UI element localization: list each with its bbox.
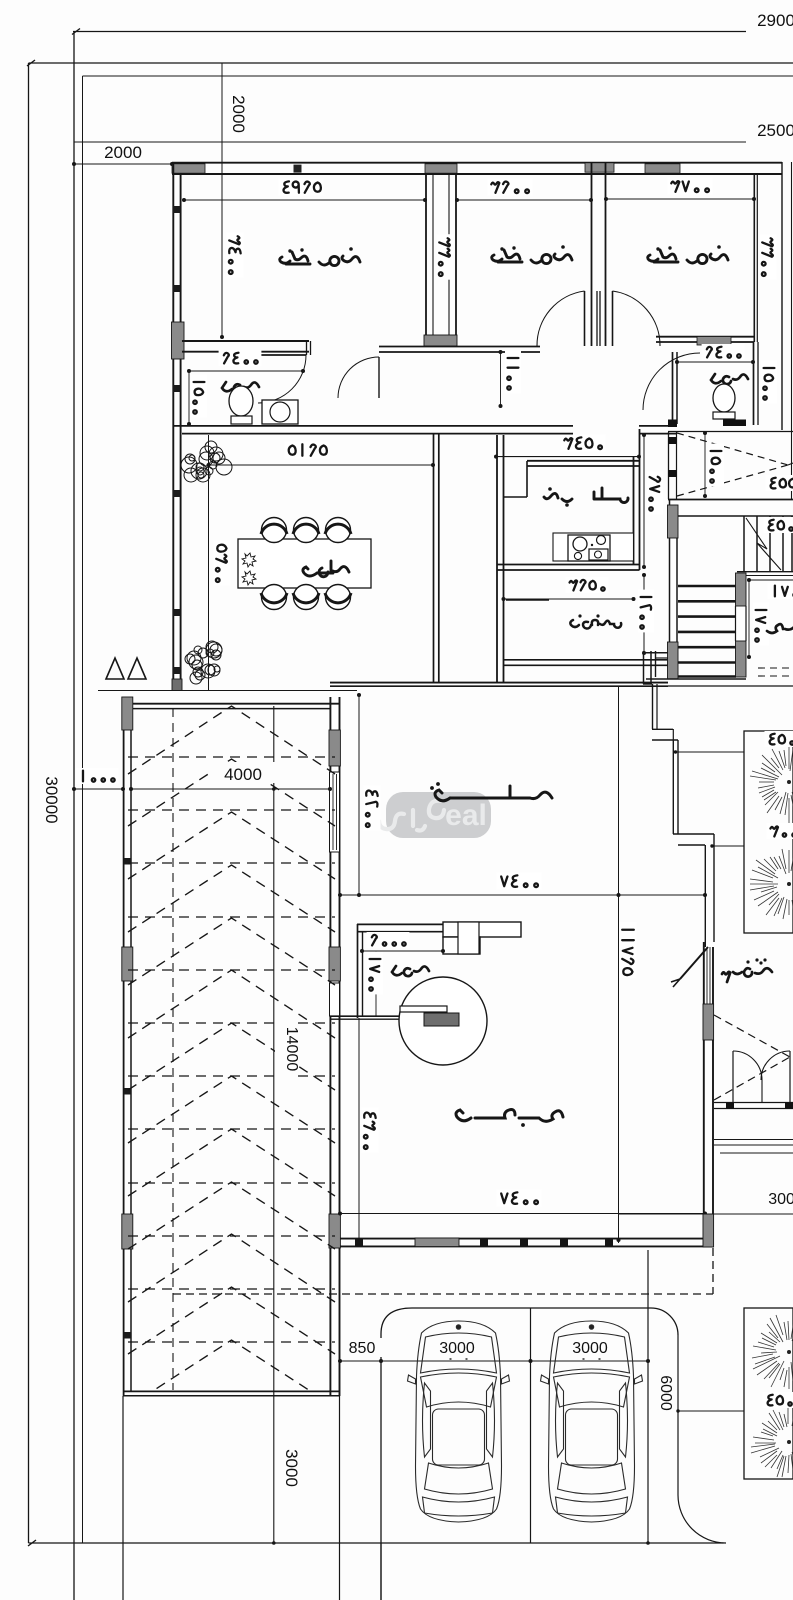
svg-text:eal: eal xyxy=(445,799,487,832)
svg-text:14000: 14000 xyxy=(283,1027,300,1072)
svg-text:2000: 2000 xyxy=(104,143,142,162)
svg-text:6000: 6000 xyxy=(657,1375,674,1411)
svg-text:2500: 2500 xyxy=(757,121,793,140)
svg-text:3000: 3000 xyxy=(572,1340,608,1357)
svg-text:30000: 30000 xyxy=(42,776,61,823)
svg-text:2000: 2000 xyxy=(229,95,248,133)
svg-text:4000: 4000 xyxy=(224,765,262,784)
svg-text:850: 850 xyxy=(349,1340,376,1357)
svg-text:2900: 2900 xyxy=(757,11,793,30)
svg-text:3000: 3000 xyxy=(282,1449,301,1487)
svg-text:3000: 3000 xyxy=(439,1340,475,1357)
svg-text:3000: 3000 xyxy=(768,1191,793,1208)
